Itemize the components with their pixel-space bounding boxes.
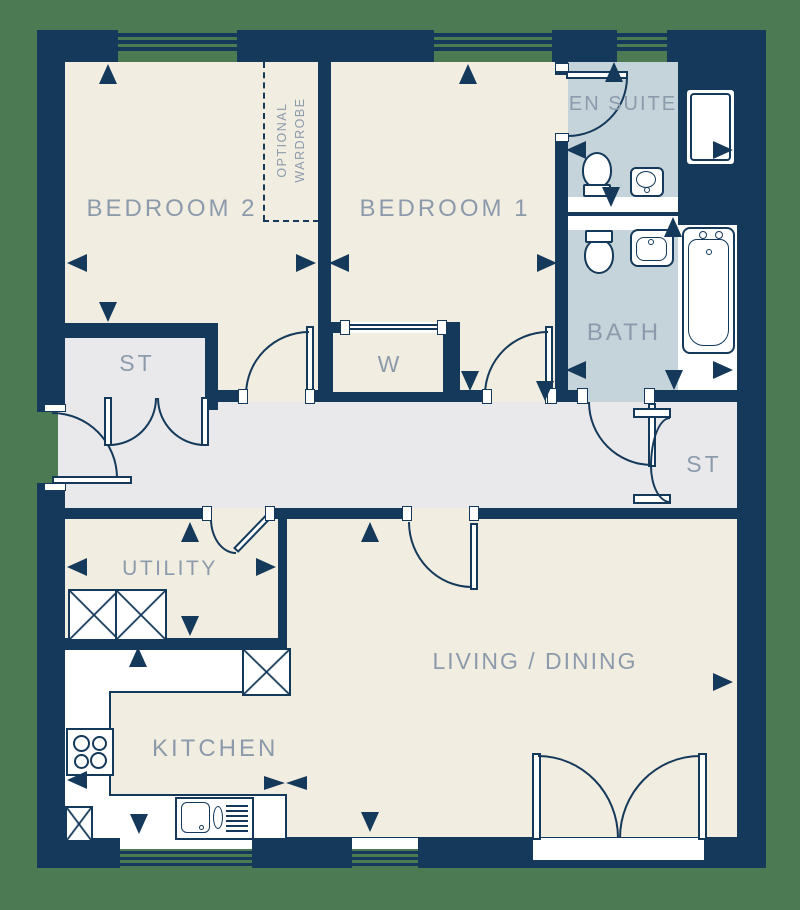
up-arrow-marker [459,64,477,84]
left-arrow-marker [566,141,586,159]
door-jamb [238,389,248,404]
right-arrow-marker [713,673,733,691]
room-label-kitchen: KITCHEN [152,735,272,763]
door-jamb [202,506,212,521]
counter-edge [109,794,287,796]
down-arrow-marker [99,302,117,322]
door-jamb [482,389,492,404]
door-jamb [437,320,447,335]
basin-bowl [636,171,656,188]
basin-drain [648,239,654,245]
sink-drain [199,825,204,830]
down-arrow-marker [130,814,148,834]
wardrobe-slider-rail [345,328,443,330]
right-arrow-marker [713,141,733,159]
counter-edge [285,795,287,838]
down-arrow-marker [665,370,683,390]
left-arrow-marker [566,361,586,379]
up-arrow-marker [664,217,682,237]
door-jamb [402,506,412,521]
right-arrow-marker [537,254,557,272]
bedroom1-floor [331,62,555,322]
bathtub-drain [706,249,712,255]
bathtub-tap [715,231,723,239]
bathtub-inner [688,239,729,346]
hob-burner [74,754,89,769]
room-label-ensuite: EN SUITE [566,93,680,116]
left-arrow-marker [67,254,87,272]
hob-burner [92,736,107,751]
down-arrow-marker [602,187,620,207]
window-bedroom1 [434,30,552,62]
bathtub-icon [682,227,735,354]
left-arrow-marker [286,776,307,790]
drainer-line [226,830,248,832]
floor-plan: BEDROOM 2 BEDROOM 1 EN SUITE BATH ST W S… [0,0,800,910]
dryer-icon [115,589,167,641]
up-arrow-marker [129,647,147,667]
up-arrow-marker [361,522,379,542]
down-arrow-marker [361,812,379,832]
room-label-optional-wardrobe: OPTIONAL WARDROBE [273,80,309,200]
toilet-cistern [585,230,613,243]
basin-icon [630,167,664,197]
drainer-line [226,810,248,812]
optional-wardrobe-line2: WARDROBE [291,80,309,200]
utility-door-gap [212,508,266,519]
fridge-icon [242,648,291,696]
utility-right-wall [278,519,287,650]
door-jamb [305,389,315,404]
hob-icon [66,728,114,776]
left-arrow-marker [329,254,349,272]
room-label-bath: BATH [568,319,680,347]
right-arrow-marker [256,558,276,576]
right-arrow-marker [296,254,316,272]
washer-icon [68,589,120,641]
storage-right-door-leaf [633,408,671,418]
down-arrow-marker [536,381,554,401]
hob-burner [73,735,90,752]
sink-unit-icon [175,797,254,840]
hob-burner [90,752,107,769]
bathtub-tap [699,231,707,239]
up-arrow-marker [605,62,623,82]
up-arrow-marker [99,64,117,84]
french-door-threshold [533,838,704,860]
up-arrow-marker [181,522,199,542]
door-jamb [469,506,479,521]
sink-tap [213,806,223,829]
sink-bowl [181,802,210,833]
drainer-line [226,805,248,807]
window-kitchen [120,838,252,868]
door-jamb [577,388,588,404]
room-label-bedroom1: BEDROOM 1 [335,195,555,223]
drainer-line [226,825,248,827]
door-jamb [265,506,275,521]
right-arrow-marker [264,776,285,790]
door-jamb [644,388,655,404]
right-arrow-marker [713,361,733,379]
door-jamb [555,63,569,72]
bath-door-gap [588,390,652,402]
appliance-icon [65,806,93,842]
left-arrow-marker [67,771,87,789]
room-label-storage-left: ST [107,350,167,377]
ensuite-vanity-strip [568,197,678,212]
door-jamb [44,483,66,491]
drainer-line [226,820,248,822]
window-living [352,838,418,868]
door-jamb [44,404,66,412]
optional-wardrobe-line1: OPTIONAL [273,80,291,200]
drainer-line [226,815,248,817]
door-jamb [340,320,350,335]
down-arrow-marker [461,371,479,391]
bath-vanity-strip [568,216,678,230]
room-label-bedroom2: BEDROOM 2 [62,195,282,223]
left-arrow-marker [67,558,87,576]
room-label-living-dining: LIVING / DINING [425,648,645,675]
down-arrow-marker [181,616,199,636]
room-label-wardrobe: W [360,351,420,378]
basin-drain [644,187,650,193]
room-label-utility: UTILITY [110,557,230,581]
window-bedroom2 [118,30,237,62]
window-ensuite [617,30,667,62]
wardrobe-slider-rail [345,324,443,326]
toilet-icon [584,239,614,274]
living-door-gap [408,508,475,519]
building-outline: BEDROOM 2 BEDROOM 1 EN SUITE BATH ST W S… [37,30,766,868]
toilet-icon [582,152,612,188]
room-label-storage-right: ST [674,451,734,478]
